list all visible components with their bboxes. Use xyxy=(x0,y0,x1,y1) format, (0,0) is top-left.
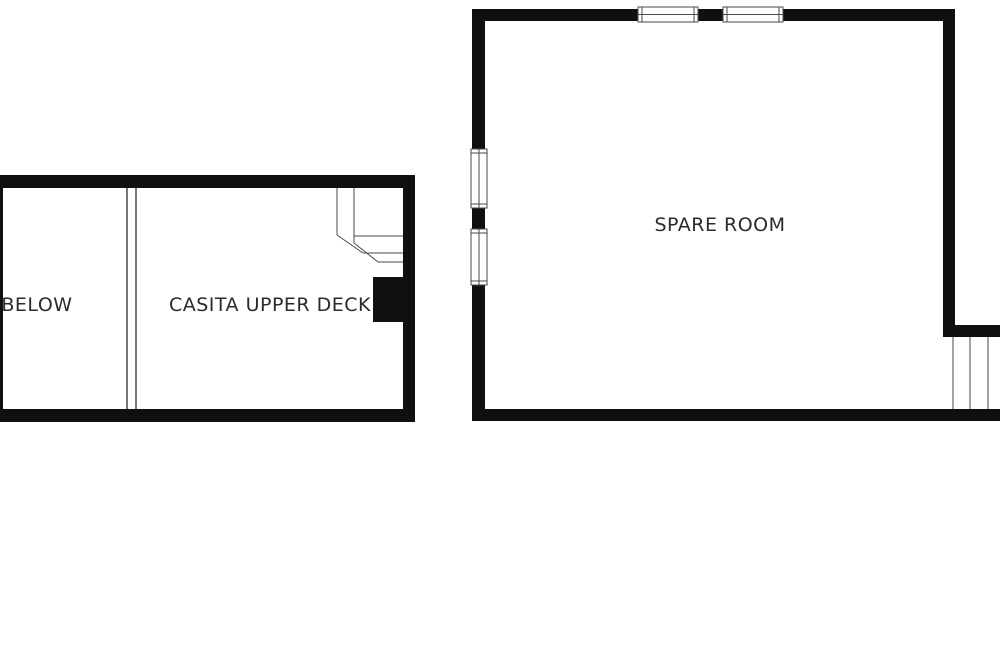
casita-wall-right xyxy=(403,175,415,422)
spare-room-wall-left-mullion xyxy=(472,208,485,229)
casita-wall-bottom xyxy=(0,409,415,422)
spare-room-structure: SPARE ROOM xyxy=(471,7,1000,421)
spare-room-wall-top xyxy=(783,9,955,21)
floor-plan: BELOW CASITA UPPER DECK xyxy=(0,0,1000,666)
window-top-1 xyxy=(638,7,698,22)
spare-room-wall-bottom xyxy=(472,409,1000,421)
spare-room-wall-top-mullion xyxy=(698,9,723,21)
casita-upper-deck-structure: BELOW CASITA UPPER DECK xyxy=(0,175,415,422)
floor-plan-canvas: BELOW CASITA UPPER DECK xyxy=(0,0,1000,666)
window-left-1 xyxy=(471,149,487,208)
room-label-casita-upper-deck: CASITA UPPER DECK xyxy=(169,294,371,316)
spare-room-wall-top xyxy=(472,9,638,21)
chimney-block xyxy=(373,277,403,322)
window-top-2 xyxy=(723,7,783,22)
casita-wall-top xyxy=(0,175,415,188)
spare-room-wall-left xyxy=(472,9,485,149)
stairs xyxy=(953,337,988,409)
corner-closet-detail xyxy=(337,188,403,262)
window-left-2 xyxy=(471,229,487,285)
spare-room-wall-right xyxy=(943,9,955,337)
room-label-spare-room: SPARE ROOM xyxy=(654,214,785,236)
spare-room-wall-left xyxy=(472,285,485,421)
spare-room-wall-stub xyxy=(955,325,1000,337)
room-label-below: BELOW xyxy=(1,294,72,316)
corner-detail-chamfer-line xyxy=(337,235,363,253)
